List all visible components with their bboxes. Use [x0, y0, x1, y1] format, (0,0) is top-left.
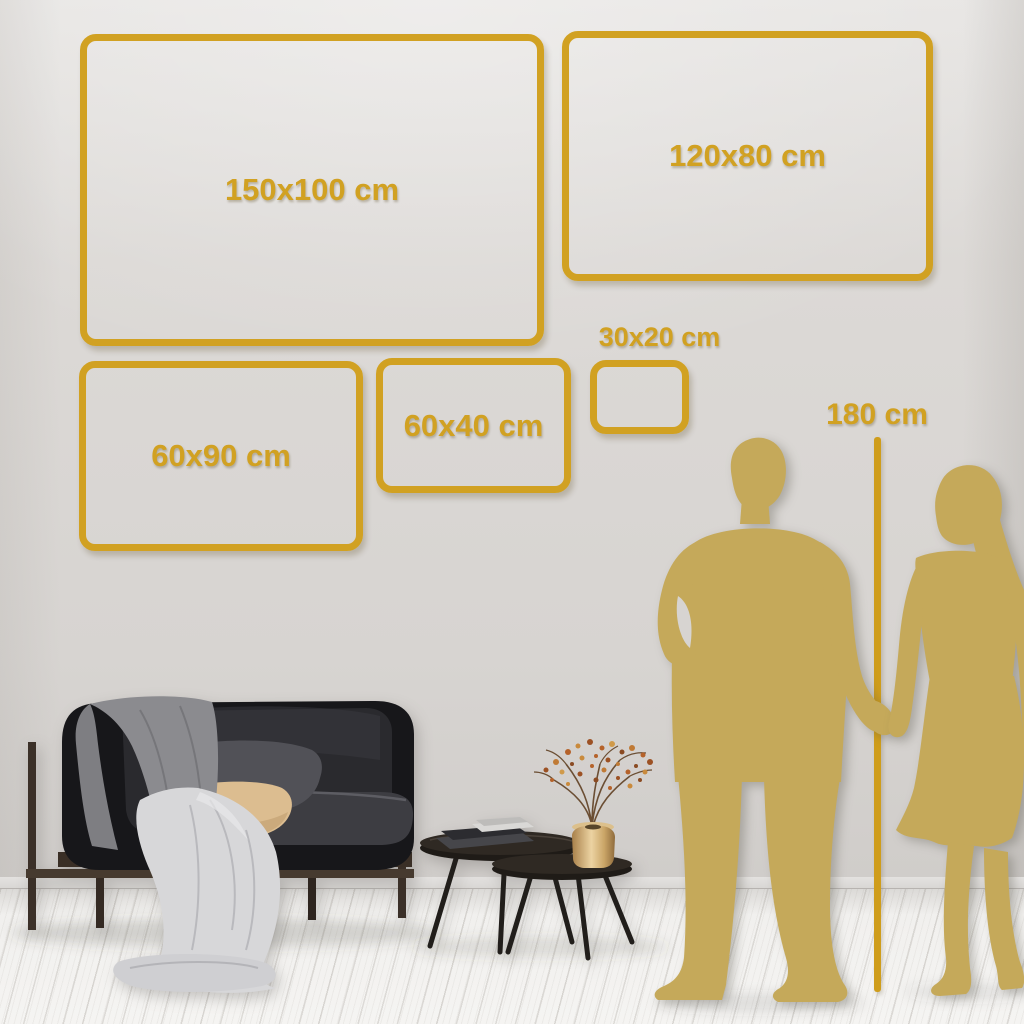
size-frame-150x100: 150x100 cm — [80, 34, 544, 346]
size-frame-60x90: 60x90 cm — [79, 361, 363, 551]
size-frame-120x80: 120x80 cm — [562, 31, 933, 281]
size-guide-infographic: 150x100 cm 120x80 cm 60x90 cm 60x40 cm 3… — [0, 0, 1024, 1024]
size-label-150x100: 150x100 cm — [225, 172, 399, 208]
size-frame-60x40: 60x40 cm — [376, 358, 571, 493]
size-label-60x40: 60x40 cm — [404, 408, 544, 444]
size-label-120x80: 120x80 cm — [669, 138, 826, 174]
size-frame-30x20 — [590, 360, 689, 434]
size-label-30x20: 30x20 cm — [577, 321, 742, 353]
size-label-60x90: 60x90 cm — [151, 438, 291, 474]
height-ruler-line — [874, 437, 881, 992]
wood-floor — [0, 889, 1024, 1024]
height-ruler-label: 180 cm — [815, 399, 939, 431]
baseboard — [0, 877, 1024, 889]
